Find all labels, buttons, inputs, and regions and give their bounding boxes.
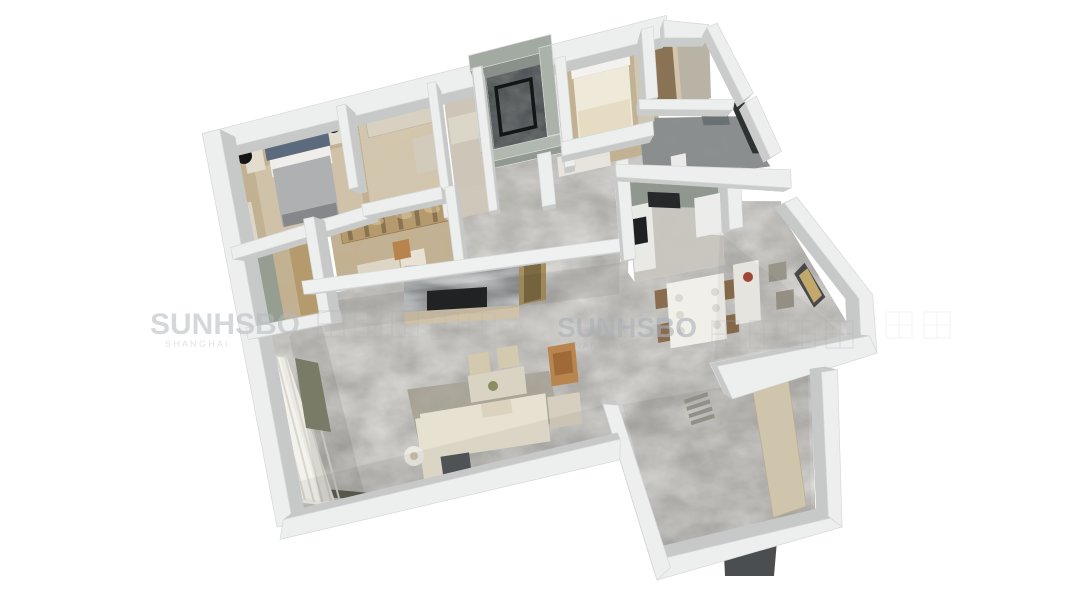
svg-text:SUNHSBO: SUNHSBO bbox=[557, 312, 697, 343]
svg-text:N A N J I N G: N A N J I N G bbox=[574, 341, 628, 351]
svg-text:SUNHSBO: SUNHSBO bbox=[150, 308, 300, 341]
svg-text:S H A N G H A I: S H A N G H A I bbox=[165, 339, 228, 349]
